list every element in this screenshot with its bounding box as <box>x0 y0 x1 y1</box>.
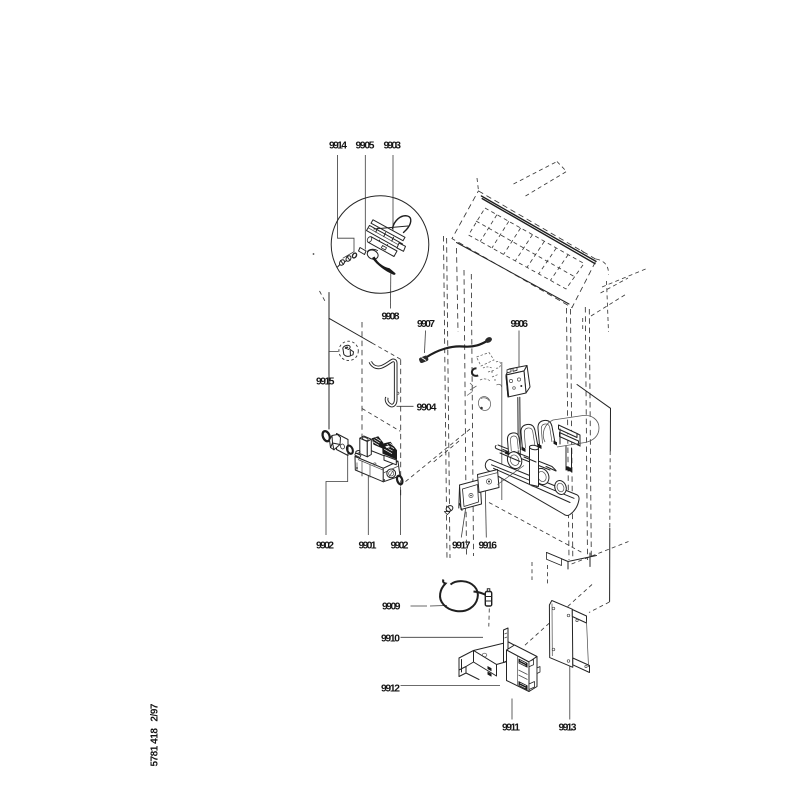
svg-text:9905: 9905 <box>356 141 375 152</box>
svg-text:9902: 9902 <box>316 541 334 552</box>
svg-text:5781 418 2/97: 5781 418 2/97 <box>150 703 161 766</box>
svg-text:9912: 9912 <box>381 684 400 695</box>
svg-text:9906: 9906 <box>511 319 529 330</box>
svg-text:9908: 9908 <box>382 312 400 323</box>
svg-text:9907: 9907 <box>417 319 435 330</box>
svg-text:9904: 9904 <box>417 403 437 414</box>
svg-text:9915: 9915 <box>316 377 335 388</box>
svg-text:9913: 9913 <box>559 722 577 733</box>
svg-text:9910: 9910 <box>381 634 400 645</box>
svg-text:9903: 9903 <box>384 141 402 152</box>
svg-text:9911: 9911 <box>502 722 520 733</box>
svg-text:9914: 9914 <box>329 141 347 152</box>
svg-text:9917: 9917 <box>452 541 471 552</box>
svg-text:9916: 9916 <box>479 541 498 552</box>
svg-text:9902: 9902 <box>391 541 409 552</box>
svg-text:9909: 9909 <box>382 602 401 613</box>
svg-text:9901: 9901 <box>359 541 377 552</box>
